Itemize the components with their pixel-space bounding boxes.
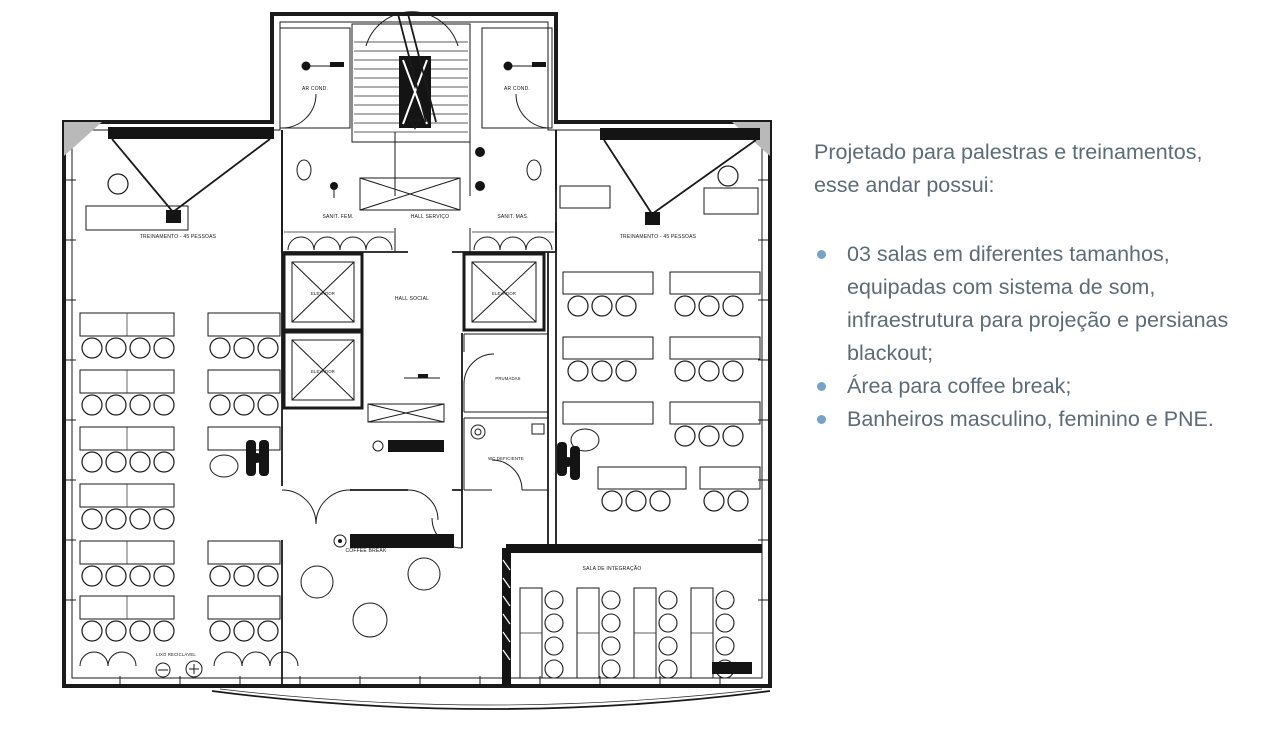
projection-screen [108,127,274,139]
list-item: 03 salas em diferentes tamanhos, equipad… [814,238,1232,370]
floor-plan: AR COND. AR COND. SANI [0,0,800,741]
treinamento-left-label: TREINAMENTO - 45 PESSOAS [140,234,217,240]
wc-deficiente-label: WC DEFICIENTE [488,456,524,461]
hall-social-label: HALL SOCIAL [395,296,429,302]
description-panel: Projetado para palestras e treinamentos,… [814,136,1232,436]
elevator-label: ELEVADOR [492,291,516,296]
hall-servico-label: HALL SERVIÇO [411,214,450,220]
ar-cond-left-label: AR COND. [302,86,328,92]
ar-cond-right-label: AR COND. [504,86,530,92]
projector-icon [166,210,181,223]
list-item-text: 03 salas em diferentes tamanhos, equipad… [847,242,1228,365]
sanit-mas-label: SANIT. MAS. [497,214,528,220]
treinamento-right-label: TREINAMENTO - 45 PESSOAS [620,234,697,240]
lixo-reciclavel-label: LIXO RECICLÁVEL [156,652,196,657]
slide: AR COND. AR COND. SANI [0,0,1280,741]
sala-integracao-label: SALA DE INTEGRAÇÃO [583,565,642,572]
bullet-icon [817,382,826,391]
list-item: Banheiros masculino, feminino e PNE. [814,403,1232,436]
list-item: Área para coffee break; [814,370,1232,403]
sanit-fem-label: SANIT. FEM. [322,214,353,220]
elevator-label: ELEVADOR [311,291,335,296]
bullet-icon [817,415,826,424]
panel-intro: Projetado para palestras e treinamentos,… [814,136,1232,202]
projection-screen [600,128,760,140]
feature-list: 03 salas em diferentes tamanhos, equipad… [814,238,1232,436]
list-item-text: Banheiros masculino, feminino e PNE. [847,407,1214,431]
projector-icon [645,212,660,225]
bullet-icon [817,250,826,259]
prumadas-label: PRUMADAS [495,376,520,381]
list-item-text: Área para coffee break; [847,374,1071,398]
coffee-break-label: COFFEE BREAK [345,548,386,554]
elevator-label: ELEVADOR [311,369,335,374]
curved-facade [212,689,770,709]
